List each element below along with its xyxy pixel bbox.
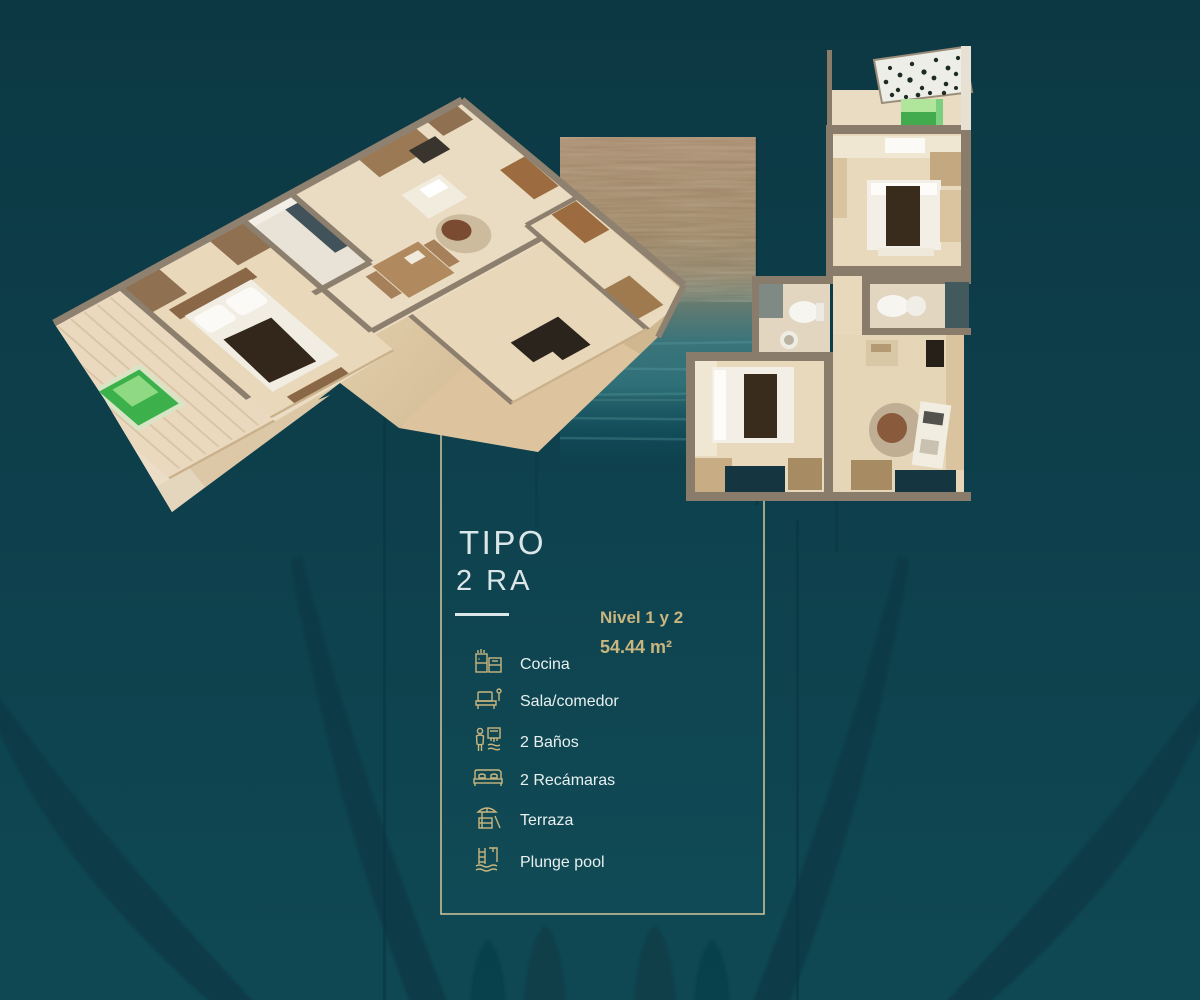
svg-text:Nivel 1 y 2: Nivel 1 y 2 (600, 608, 683, 627)
svg-text:Plunge pool: Plunge pool (520, 854, 605, 871)
svg-text:2 Recámaras: 2 Recámaras (520, 772, 615, 789)
svg-text:Cocina: Cocina (520, 656, 570, 673)
svg-text:Terraza: Terraza (520, 812, 573, 829)
svg-text:2 Baños: 2 Baños (520, 734, 579, 751)
svg-text:Sala/comedor: Sala/comedor (520, 693, 619, 710)
svg-text:54.44 m²: 54.44 m² (600, 637, 672, 657)
svg-text:TIPO: TIPO (459, 524, 546, 561)
svg-text:2 RA: 2 RA (456, 565, 532, 597)
